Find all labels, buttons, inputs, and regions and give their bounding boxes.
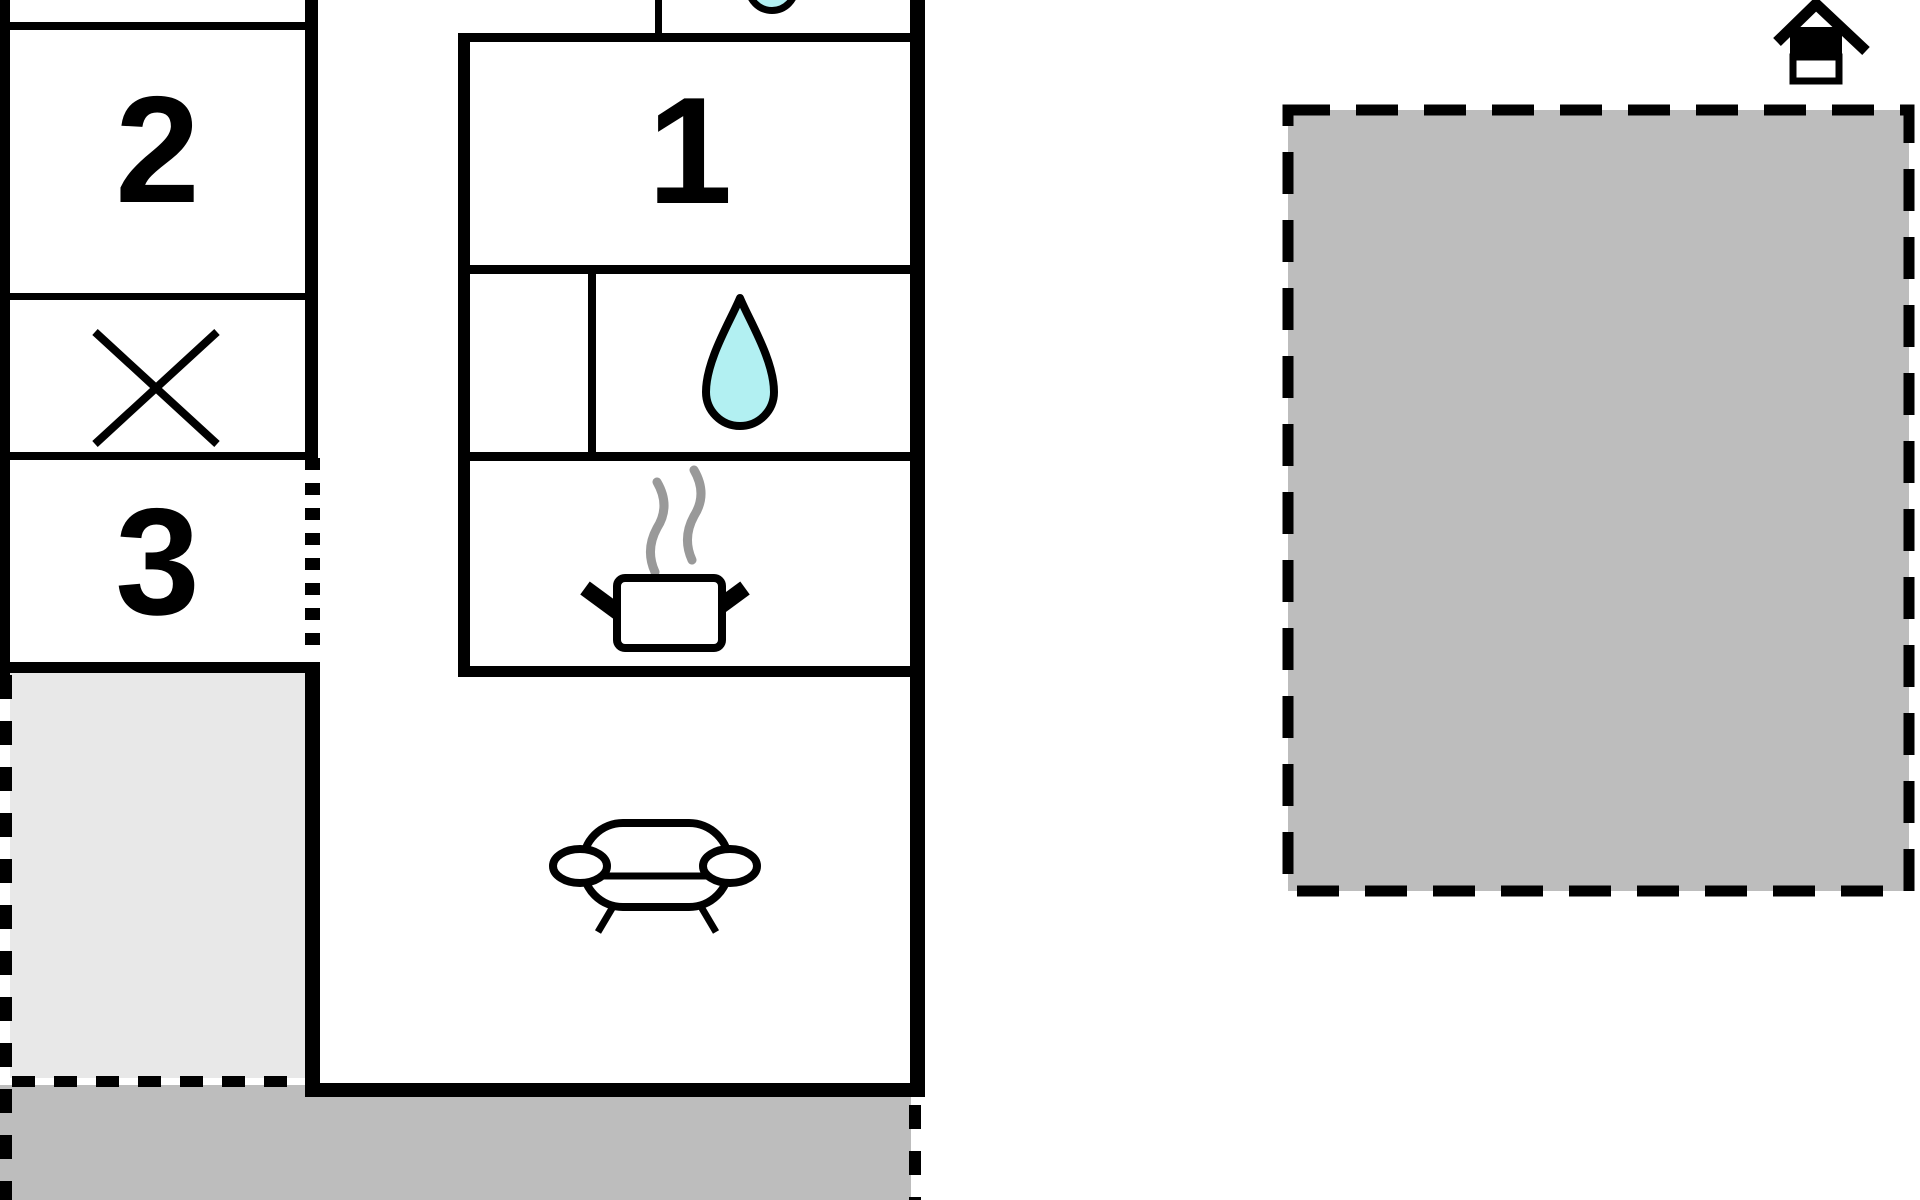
floor-plan: 2 3 1: [0, 0, 1920, 1200]
terrace-dashed-border: [1288, 110, 1909, 891]
wall: [588, 265, 596, 458]
room-1-label: 1: [470, 40, 910, 262]
house-entrance-icon: [1765, 0, 1875, 92]
wall: [305, 0, 318, 460]
dashed-boundary-strip-right: [909, 1105, 921, 1200]
terrace-right-area: [1282, 104, 1915, 897]
dashed-boundary-patio-bottom: [12, 1076, 305, 1087]
wall: [0, 293, 318, 300]
wall: [458, 452, 910, 461]
dashed-boundary-left: [0, 675, 12, 1200]
wall: [0, 22, 316, 30]
x-marker-icon: [86, 324, 226, 452]
room-3-label: 3: [10, 462, 305, 662]
wall: [305, 662, 320, 1097]
water-drop-icon: [698, 292, 782, 430]
sofa-icon: [540, 810, 770, 938]
room-2-label: 2: [10, 25, 305, 275]
wall: [458, 666, 925, 677]
wall: [458, 265, 910, 274]
wall: [458, 33, 925, 42]
dashed-door-boundary: [305, 458, 320, 658]
wall: [910, 0, 925, 1097]
cooking-pot-icon: [565, 570, 765, 655]
wall: [0, 0, 10, 675]
wall: [458, 33, 470, 677]
basin-icon: [745, 0, 799, 14]
steam-icon: [630, 462, 720, 577]
terrace-bottom-strip: [0, 1085, 911, 1200]
wall: [0, 662, 318, 673]
patio-light-gray-area: [10, 673, 305, 1078]
wall: [305, 1083, 925, 1097]
wall: [0, 452, 318, 460]
